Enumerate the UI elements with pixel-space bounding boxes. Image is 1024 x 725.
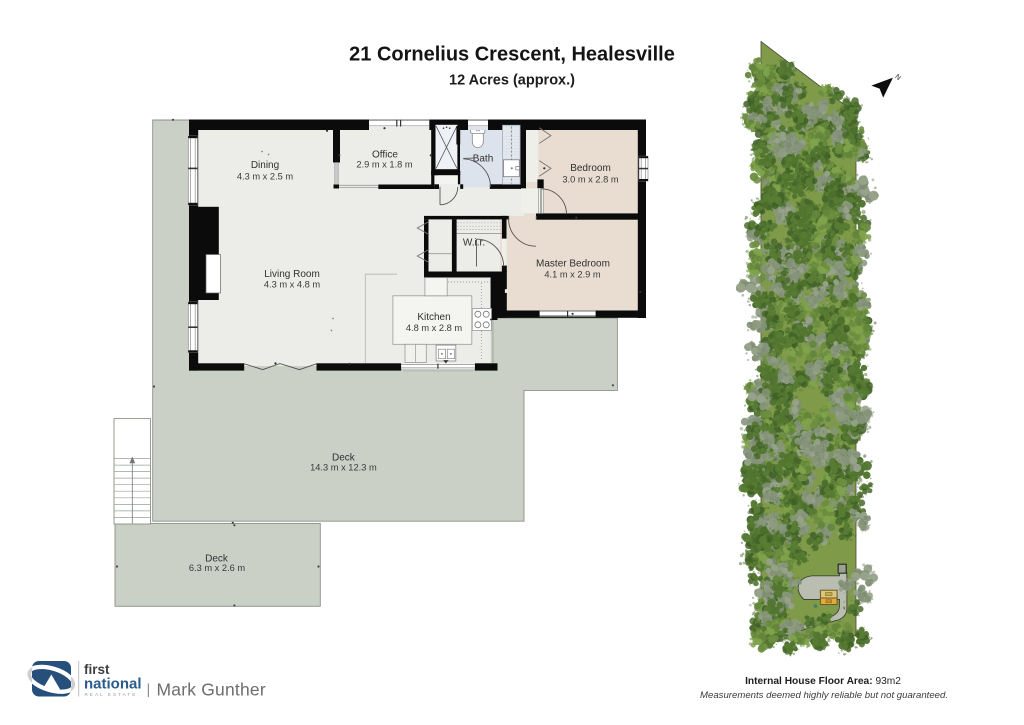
svg-text:4.1 m x 2.9 m: 4.1 m x 2.9 m — [544, 270, 601, 280]
svg-text:Bath: Bath — [473, 154, 494, 165]
svg-text:14.3 m x 12.3 m: 14.3 m x 12.3 m — [310, 463, 377, 473]
svg-text:REAL ESTATE: REAL ESTATE — [85, 692, 138, 697]
svg-text:2.9 m x 1.8 m: 2.9 m x 1.8 m — [356, 160, 413, 170]
svg-text:4.3 m x 4.8 m: 4.3 m x 4.8 m — [264, 280, 321, 290]
svg-text:Dining: Dining — [251, 160, 279, 171]
svg-text:Kitchen: Kitchen — [417, 312, 450, 323]
svg-text:12 Acres (approx.): 12 Acres (approx.) — [449, 73, 575, 89]
svg-text:3.0 m x 2.8 m: 3.0 m x 2.8 m — [562, 175, 619, 185]
svg-text:national: national — [84, 676, 142, 693]
svg-text:4.8 m x 2.8 m: 4.8 m x 2.8 m — [406, 323, 463, 333]
svg-text:21 Cornelius Crescent, Healesv: 21 Cornelius Crescent, Healesville — [349, 44, 675, 66]
svg-text:Bedroom: Bedroom — [570, 163, 611, 174]
svg-text:Internal House Floor Area: 93m: Internal House Floor Area: 93m2 — [745, 676, 901, 687]
svg-text:Master Bedroom: Master Bedroom — [536, 259, 610, 270]
svg-text:W.i.r.: W.i.r. — [463, 238, 485, 249]
svg-text:6.3 m x 2.6 m: 6.3 m x 2.6 m — [189, 563, 246, 573]
svg-text:Living Room: Living Room — [264, 269, 320, 280]
svg-text:Measurements deemed highly rel: Measurements deemed highly reliable but … — [700, 690, 948, 701]
svg-text:4.3 m x 2.5 m: 4.3 m x 2.5 m — [237, 172, 294, 182]
svg-text:Mark Gunther: Mark Gunther — [157, 680, 266, 700]
